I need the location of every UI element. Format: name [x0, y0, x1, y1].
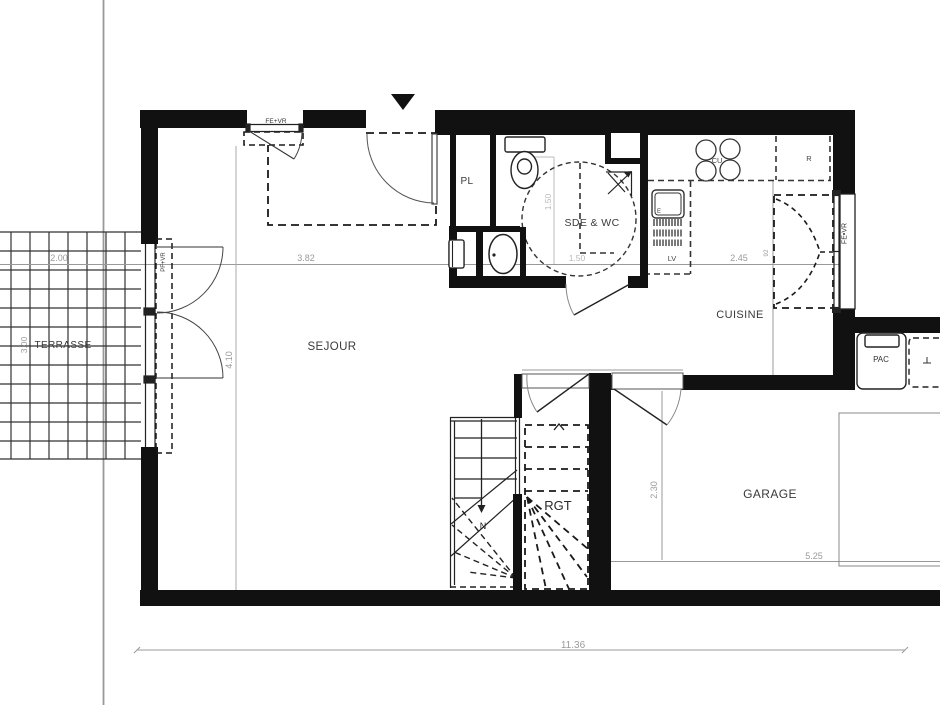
svg-text:1.50: 1.50	[569, 253, 586, 263]
svg-text:SDE & WC: SDE & WC	[564, 217, 619, 229]
svg-text:CUISINE: CUISINE	[716, 309, 763, 321]
svg-text:2.00: 2.00	[50, 253, 68, 263]
svg-text:PAC: PAC	[873, 355, 889, 364]
svg-text:PL: PL	[460, 176, 473, 187]
svg-text:FE+VR: FE+VR	[265, 118, 286, 125]
svg-text:3.82: 3.82	[297, 253, 315, 263]
svg-text:GARAGE: GARAGE	[743, 487, 797, 501]
svg-text:R: R	[806, 154, 812, 163]
svg-text:2.45: 2.45	[730, 253, 748, 263]
svg-text:FE•VR: FE•VR	[842, 223, 849, 244]
svg-text:4.10: 4.10	[224, 351, 234, 369]
svg-text:SEJOUR: SEJOUR	[307, 341, 356, 353]
svg-text:3.00: 3.00	[19, 336, 29, 353]
svg-text:LV: LV	[668, 254, 677, 263]
svg-text:2.30: 2.30	[649, 481, 659, 499]
svg-text:1.50: 1.50	[543, 193, 553, 210]
svg-text:92: 92	[763, 249, 770, 257]
svg-text:11.36: 11.36	[561, 640, 586, 651]
svg-text:CU: CU	[712, 156, 723, 165]
svg-text:PF+VR: PF+VR	[161, 252, 167, 272]
svg-text:5.25: 5.25	[805, 551, 823, 561]
svg-text:E: E	[657, 209, 661, 215]
svg-text:N: N	[480, 521, 487, 531]
svg-text:RGT: RGT	[544, 498, 572, 513]
svg-text:TERRASSE: TERRASSE	[34, 340, 91, 351]
